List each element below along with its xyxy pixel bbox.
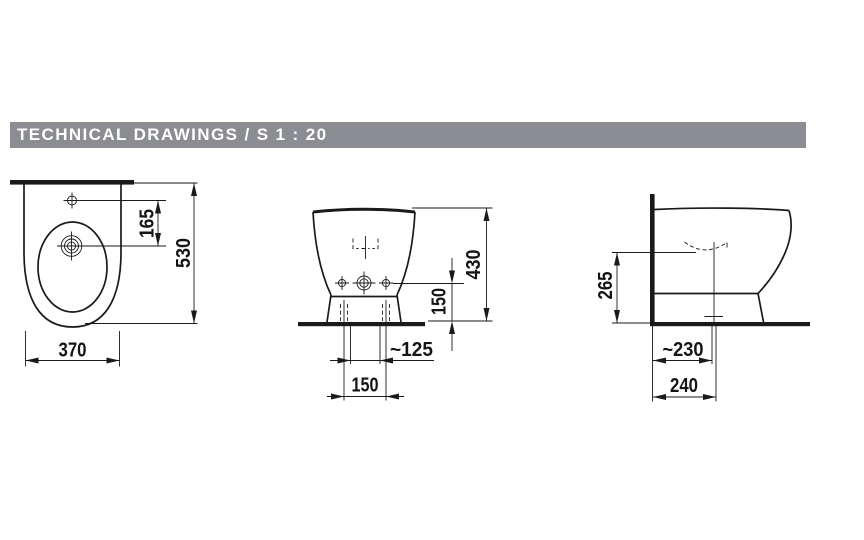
dim-side-fixing: ~125 xyxy=(330,339,434,364)
dim-label-165: 165 xyxy=(137,209,159,238)
wall-line xyxy=(10,180,134,185)
dim-base-depth: 240 xyxy=(653,375,717,400)
dim-label-150-right: 150 xyxy=(429,288,451,315)
floor-line xyxy=(650,322,810,326)
dim-label-125: ~125 xyxy=(390,339,433,361)
dim-fixing-spacing: 150 xyxy=(327,375,404,400)
bidet-front-curve xyxy=(758,211,791,294)
fixing-hole-left xyxy=(335,276,349,290)
waterline-dashed-marker xyxy=(685,242,728,250)
front-view-drawing: ~125 150 430 150 xyxy=(298,208,493,401)
bidet-top-edge xyxy=(655,208,790,210)
drain-marker xyxy=(57,232,86,261)
side-view-drawing: 265 ~230 240 xyxy=(595,194,810,402)
dim-label-150-bottom: 150 xyxy=(352,375,379,397)
inlet-dashed-marker xyxy=(353,236,378,259)
bidet-rim-edge xyxy=(313,209,415,212)
fixing-hole-right xyxy=(379,276,393,290)
bidet-body-left xyxy=(313,212,331,295)
dim-hole-offset: 165 xyxy=(80,201,166,247)
wall-line xyxy=(650,194,655,326)
pedestal-front xyxy=(758,294,764,323)
dim-depth: 530 xyxy=(85,183,198,324)
dim-water-level-height: 265 xyxy=(595,253,696,324)
outlet-centerline xyxy=(705,242,724,322)
technical-drawings-canvas: 165 530 370 xyxy=(0,0,864,540)
dim-fixing-height: 150 xyxy=(393,258,464,351)
dim-label-370: 370 xyxy=(59,340,87,362)
dim-label-265: 265 xyxy=(595,272,617,300)
floor-line xyxy=(298,322,425,326)
dim-label-240: 240 xyxy=(670,375,698,397)
dim-width: 370 xyxy=(26,331,120,367)
dim-label-430: 430 xyxy=(463,250,485,280)
dim-label-530: 530 xyxy=(173,238,195,268)
bidet-body-right xyxy=(397,212,415,295)
drain-hole-center xyxy=(353,272,376,295)
tap-hole-marker xyxy=(64,193,81,209)
top-view-drawing: 165 530 370 xyxy=(10,180,198,367)
dim-label-230: ~230 xyxy=(663,339,704,361)
